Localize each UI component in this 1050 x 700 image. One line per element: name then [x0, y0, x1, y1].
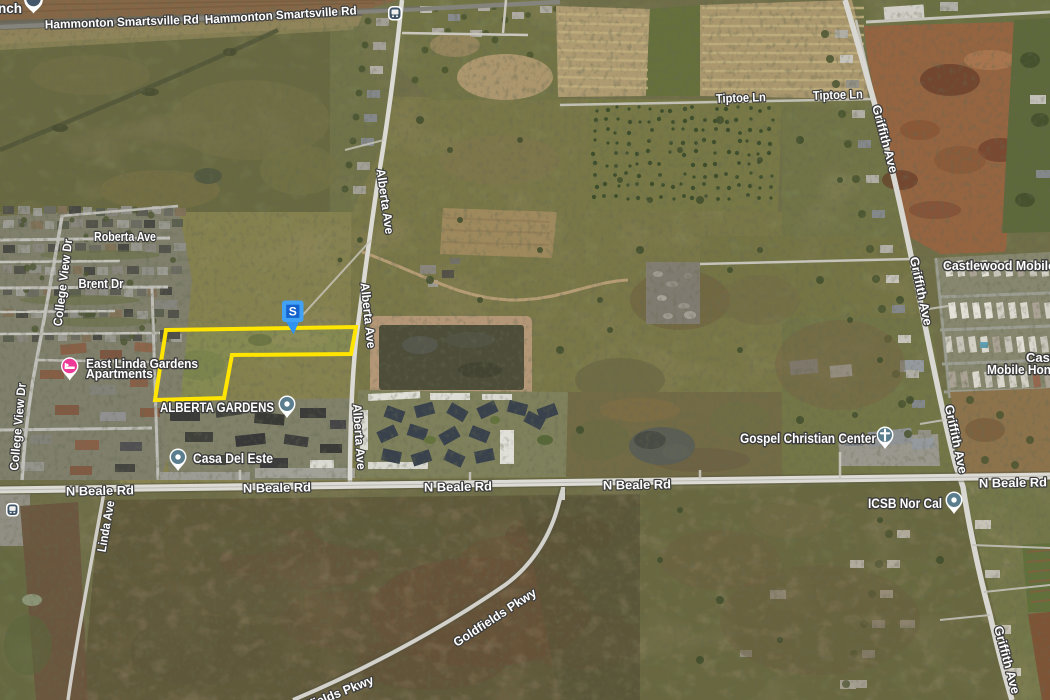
- svg-text:Casa Del Este: Casa Del Este: [193, 451, 273, 466]
- svg-text:Roberta Ave: Roberta Ave: [94, 230, 156, 244]
- svg-text:Tiptoe Ln: Tiptoe Ln: [716, 90, 766, 106]
- svg-text:N Beale Rd: N Beale Rd: [979, 475, 1047, 490]
- svg-text:Castlewood Mobile: Castlewood Mobile: [943, 258, 1050, 273]
- svg-text:ICSB Nor Cal: ICSB Nor Cal: [868, 496, 942, 511]
- svg-text:Apartments: Apartments: [86, 366, 153, 381]
- svg-text:N Beale Rd: N Beale Rd: [243, 480, 311, 495]
- svg-text:nch: nch: [0, 1, 22, 16]
- svg-text:Mobile Hon: Mobile Hon: [987, 362, 1050, 377]
- svg-text:S: S: [289, 305, 297, 319]
- svg-text:N Beale Rd: N Beale Rd: [66, 483, 134, 498]
- svg-text:ALBERTA GARDENS: ALBERTA GARDENS: [160, 400, 274, 415]
- svg-text:N Beale Rd: N Beale Rd: [424, 479, 492, 494]
- svg-text:Tiptoe Ln: Tiptoe Ln: [813, 87, 863, 103]
- svg-text:Brent Dr: Brent Dr: [79, 277, 124, 291]
- svg-text:N Beale Rd: N Beale Rd: [603, 477, 671, 492]
- svg-text:Gospel Christian Center: Gospel Christian Center: [740, 431, 877, 446]
